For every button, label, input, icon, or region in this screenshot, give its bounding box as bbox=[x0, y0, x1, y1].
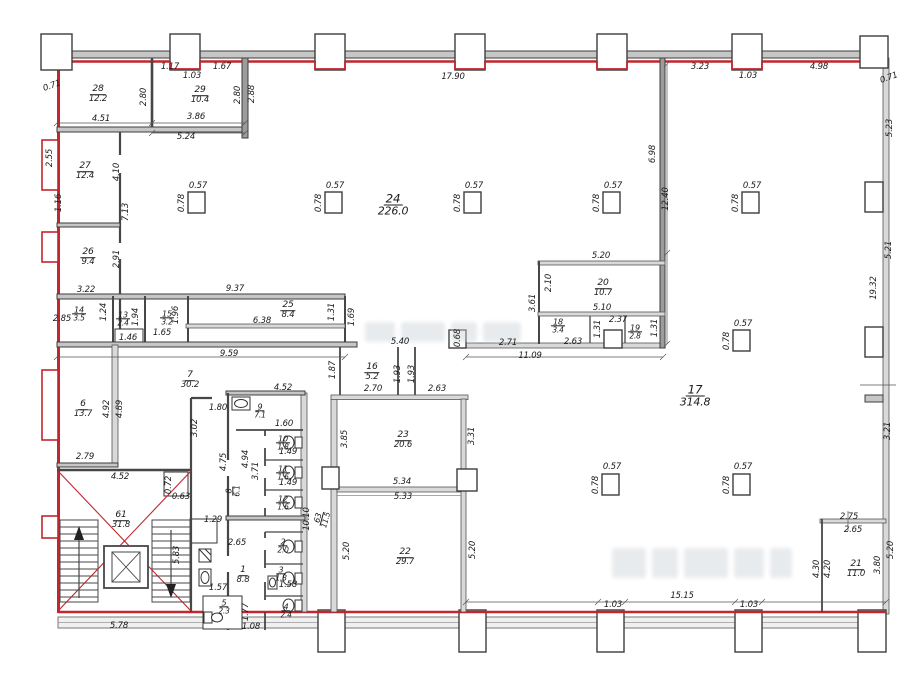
dimension-label: 1.60 bbox=[275, 419, 293, 429]
dimension-label: 4.75 bbox=[219, 453, 229, 471]
dimension-label: 4.92 bbox=[102, 400, 112, 418]
dimension-label: 0.57 bbox=[465, 181, 483, 191]
dimension-label: 1.77 bbox=[241, 603, 251, 621]
dimension-label: 0.57 bbox=[189, 181, 207, 191]
dimension-label: 1.16 bbox=[54, 194, 64, 212]
dimension-label: 15.15 bbox=[670, 591, 693, 601]
room-area: 10.4 bbox=[191, 96, 209, 105]
room-label: 2910.4 bbox=[191, 85, 209, 105]
dimension-label: 2.91 bbox=[112, 250, 122, 268]
room-area: 2.8 bbox=[628, 333, 642, 341]
room-area: 31.8 bbox=[112, 521, 130, 530]
dimension-label: 3.22 bbox=[77, 285, 95, 295]
room-label: 2229.7 bbox=[396, 547, 414, 567]
room-area: 1.6 bbox=[276, 504, 290, 512]
dimension-label: 6.38 bbox=[253, 316, 271, 326]
dimension-label: 2.85 bbox=[53, 314, 71, 324]
dimension-label: 1.24 bbox=[99, 303, 109, 321]
dimension-label: 4.30 bbox=[812, 560, 822, 578]
dimension-label: 5.20 bbox=[886, 541, 896, 559]
room-label: 17314.8 bbox=[680, 383, 711, 408]
room-label: 42.4 bbox=[280, 602, 291, 619]
room-label: 52.3 bbox=[218, 598, 229, 615]
room-area: 2.0 bbox=[277, 547, 288, 555]
dimension-label: 5.34 bbox=[393, 477, 411, 487]
dimension-label: 3.71 bbox=[251, 462, 261, 480]
room-area: 2.4 bbox=[280, 612, 291, 620]
dimension-label: 2.65 bbox=[228, 538, 246, 548]
dimension-label: 5.40 bbox=[391, 337, 409, 347]
dimension-label: 2.55 bbox=[45, 149, 55, 167]
dimension-label: 1.65 bbox=[153, 328, 171, 338]
dimension-label: 1.93 bbox=[393, 365, 403, 383]
dimension-label: 1.29 bbox=[204, 515, 222, 525]
room-label: 2320.6 bbox=[394, 430, 412, 450]
dimension-label: 2.10 bbox=[544, 274, 554, 292]
dimension-label: 2.63 bbox=[564, 337, 582, 347]
dimension-label: 1.08 bbox=[242, 622, 260, 632]
room-label: 101.8 bbox=[276, 434, 290, 451]
room-area: 1.8 bbox=[276, 444, 290, 452]
room-area: 2.4 bbox=[116, 320, 130, 328]
dimension-label: 4.89 bbox=[115, 400, 125, 418]
room-label: 22.0 bbox=[277, 537, 288, 554]
room-area: 11.5 bbox=[321, 512, 333, 529]
dimension-label: 0.57 bbox=[734, 319, 752, 329]
room-label: 6311.5 bbox=[312, 509, 333, 529]
room-label: 97.1 bbox=[254, 402, 265, 419]
dimension-label: 0.57 bbox=[326, 181, 344, 191]
room-area: 226.0 bbox=[378, 206, 409, 218]
room-area: 13.7 bbox=[74, 410, 92, 419]
dimension-label: 2.80 bbox=[139, 88, 149, 106]
room-label: 192.8 bbox=[628, 323, 642, 340]
dimension-label: 17.90 bbox=[441, 72, 464, 82]
room-area: 9.4 bbox=[80, 258, 95, 267]
dimension-label: 4.20 bbox=[823, 560, 833, 578]
room-area: 11.0 bbox=[847, 570, 865, 579]
dimension-label: 1.46 bbox=[119, 333, 137, 343]
room-area: 30.2 bbox=[181, 381, 199, 390]
dimension-label: 0.57 bbox=[734, 462, 752, 472]
dimension-label: 0.78 bbox=[314, 194, 324, 212]
dimension-label: 5.10 bbox=[593, 303, 611, 313]
room-area: 10.7 bbox=[594, 289, 612, 298]
room-label: 258.4 bbox=[280, 300, 295, 320]
dimension-label: 0.78 bbox=[592, 194, 602, 212]
dimension-label: 4.51 bbox=[92, 114, 110, 124]
dimension-label: 1.03 bbox=[183, 71, 201, 81]
dimension-label: 1.87 bbox=[328, 361, 338, 379]
dimension-label: 0.78 bbox=[177, 194, 187, 212]
room-label: 613.7 bbox=[74, 399, 92, 419]
dimension-label: 3.23 bbox=[691, 62, 709, 72]
dimension-label: 2.65 bbox=[844, 525, 862, 535]
dimension-label: 9.59 bbox=[220, 349, 238, 359]
dimension-label: 3.85 bbox=[340, 430, 350, 448]
room-label: 31.8 bbox=[275, 565, 286, 582]
dimension-label: 1.31 bbox=[650, 319, 660, 337]
room-area: 29.7 bbox=[396, 558, 414, 567]
dimension-label: 0.78 bbox=[591, 476, 601, 494]
dimension-label: 10.10 bbox=[302, 507, 312, 530]
dimension-label: 4.94 bbox=[241, 450, 251, 468]
dimension-label: 0.71 bbox=[879, 70, 899, 86]
room-label: 86.1 bbox=[224, 485, 241, 496]
dimension-label: 0.57 bbox=[603, 462, 621, 472]
dimension-label: 3.02 bbox=[190, 419, 200, 437]
dimension-label: 2.71 bbox=[499, 338, 517, 348]
room-area: 1.6 bbox=[276, 474, 290, 482]
room-area: 3.2 bbox=[160, 319, 174, 327]
dimension-label: 3.21 bbox=[883, 422, 893, 440]
dimension-label: 1.31 bbox=[327, 303, 337, 321]
room-area: 12.4 bbox=[76, 172, 94, 181]
room-label: 6131.8 bbox=[112, 510, 130, 530]
dimension-label: 0.78 bbox=[722, 476, 732, 494]
dimension-label: 1.93 bbox=[407, 365, 417, 383]
dimension-label: 19.32 bbox=[869, 276, 879, 299]
dimension-label: 1.03 bbox=[740, 600, 758, 610]
room-area: 12.2 bbox=[89, 95, 107, 104]
dimension-label: 0.71 bbox=[42, 78, 62, 94]
room-label: 165.2 bbox=[364, 362, 379, 382]
dimension-label: 0.57 bbox=[743, 181, 761, 191]
dimension-label: 3.31 bbox=[467, 427, 477, 445]
room-label: 2712.4 bbox=[76, 161, 94, 181]
dimension-label: 2.63 bbox=[428, 384, 446, 394]
room-area: 2.3 bbox=[218, 608, 229, 616]
dimension-label: 2.88 bbox=[247, 85, 257, 103]
dimension-label: 12.40 bbox=[661, 187, 671, 210]
room-area: 8.4 bbox=[280, 311, 295, 320]
dimension-label: 3.80 bbox=[873, 556, 883, 574]
room-label: 2111.0 bbox=[847, 559, 865, 579]
dimension-label: 5.20 bbox=[592, 251, 610, 261]
room-label: 121.6 bbox=[276, 494, 290, 511]
dimension-label: 7.13 bbox=[121, 203, 131, 221]
labels-layer: 0.711.171.031.6717.903.231.034.980.714.5… bbox=[0, 0, 900, 681]
room-area: 5.2 bbox=[364, 373, 379, 382]
dimension-label: 1.94 bbox=[131, 308, 141, 326]
room-number: 17 bbox=[686, 383, 705, 396]
dimension-label: 1.69 bbox=[347, 308, 357, 326]
room-label: 183.4 bbox=[551, 317, 565, 334]
dimension-label: 0.68 bbox=[453, 329, 463, 347]
dimension-label: 2.79 bbox=[76, 452, 94, 462]
room-label: 111.6 bbox=[276, 464, 290, 481]
dimension-label: 5.23 bbox=[885, 119, 895, 137]
dimension-label: 5.24 bbox=[177, 132, 195, 142]
room-area: 20.6 bbox=[394, 441, 412, 450]
dimension-label: 5.83 bbox=[172, 546, 182, 564]
dimension-label: 5.33 bbox=[394, 492, 412, 502]
dimension-label: 11.09 bbox=[518, 351, 541, 361]
dimension-label: 1.80 bbox=[209, 403, 227, 413]
dimension-label: 2.37 bbox=[609, 315, 627, 325]
room-label: 730.2 bbox=[181, 370, 199, 390]
room-label: 24226.0 bbox=[378, 192, 409, 217]
room-area: 6.1 bbox=[234, 485, 242, 496]
room-area: 8.8 bbox=[237, 576, 250, 585]
dimension-label: 2.80 bbox=[233, 86, 243, 104]
dimension-label: 4.52 bbox=[111, 472, 129, 482]
room-label: 2010.7 bbox=[594, 278, 612, 298]
floor-plan-canvas: 0.711.171.031.6717.903.231.034.980.714.5… bbox=[0, 0, 900, 681]
room-area: 7.1 bbox=[254, 412, 265, 420]
room-area: 314.8 bbox=[680, 397, 711, 409]
dimension-label: 5.78 bbox=[110, 621, 128, 631]
dimension-label: 1.17 bbox=[161, 62, 179, 72]
dimension-label: 4.52 bbox=[274, 383, 292, 393]
dimension-label: 1.03 bbox=[604, 600, 622, 610]
dimension-label: 1.03 bbox=[739, 71, 757, 81]
dimension-label: 1.67 bbox=[213, 62, 231, 72]
dimension-label: 3.61 bbox=[528, 294, 538, 312]
room-label: 2812.2 bbox=[89, 84, 107, 104]
room-area: 3.4 bbox=[551, 327, 565, 335]
room-area: 1.8 bbox=[275, 575, 286, 583]
room-label: 153.2 bbox=[160, 309, 174, 326]
room-label: 18.8 bbox=[237, 565, 250, 585]
dimension-label: 4.10 bbox=[112, 163, 122, 181]
dimension-label: 9.37 bbox=[226, 284, 244, 294]
dimension-label: 0.63 bbox=[172, 492, 190, 502]
dimension-label: 4.98 bbox=[810, 62, 828, 72]
dimension-label: 0.78 bbox=[722, 332, 732, 350]
dimension-label: 1.57 bbox=[209, 583, 227, 593]
room-label: 132.4 bbox=[116, 310, 130, 327]
room-label: 143.5 bbox=[72, 305, 86, 322]
dimension-label: 6.98 bbox=[648, 145, 658, 163]
room-label: 269.4 bbox=[80, 247, 95, 267]
dimension-label: 2.75 bbox=[840, 512, 858, 522]
room-area: 3.5 bbox=[72, 315, 86, 323]
room-number: 24 bbox=[384, 192, 403, 205]
dimension-label: 5.21 bbox=[884, 241, 894, 259]
dimension-label: 1.31 bbox=[593, 320, 603, 338]
dimension-label: 5.20 bbox=[342, 542, 352, 560]
dimension-label: 0.78 bbox=[731, 194, 741, 212]
dimension-label: 5.20 bbox=[468, 541, 478, 559]
dimension-label: 0.57 bbox=[604, 181, 622, 191]
dimension-label: 0.78 bbox=[453, 194, 463, 212]
dimension-label: 2.70 bbox=[364, 384, 382, 394]
dimension-label: 3.86 bbox=[187, 112, 205, 122]
